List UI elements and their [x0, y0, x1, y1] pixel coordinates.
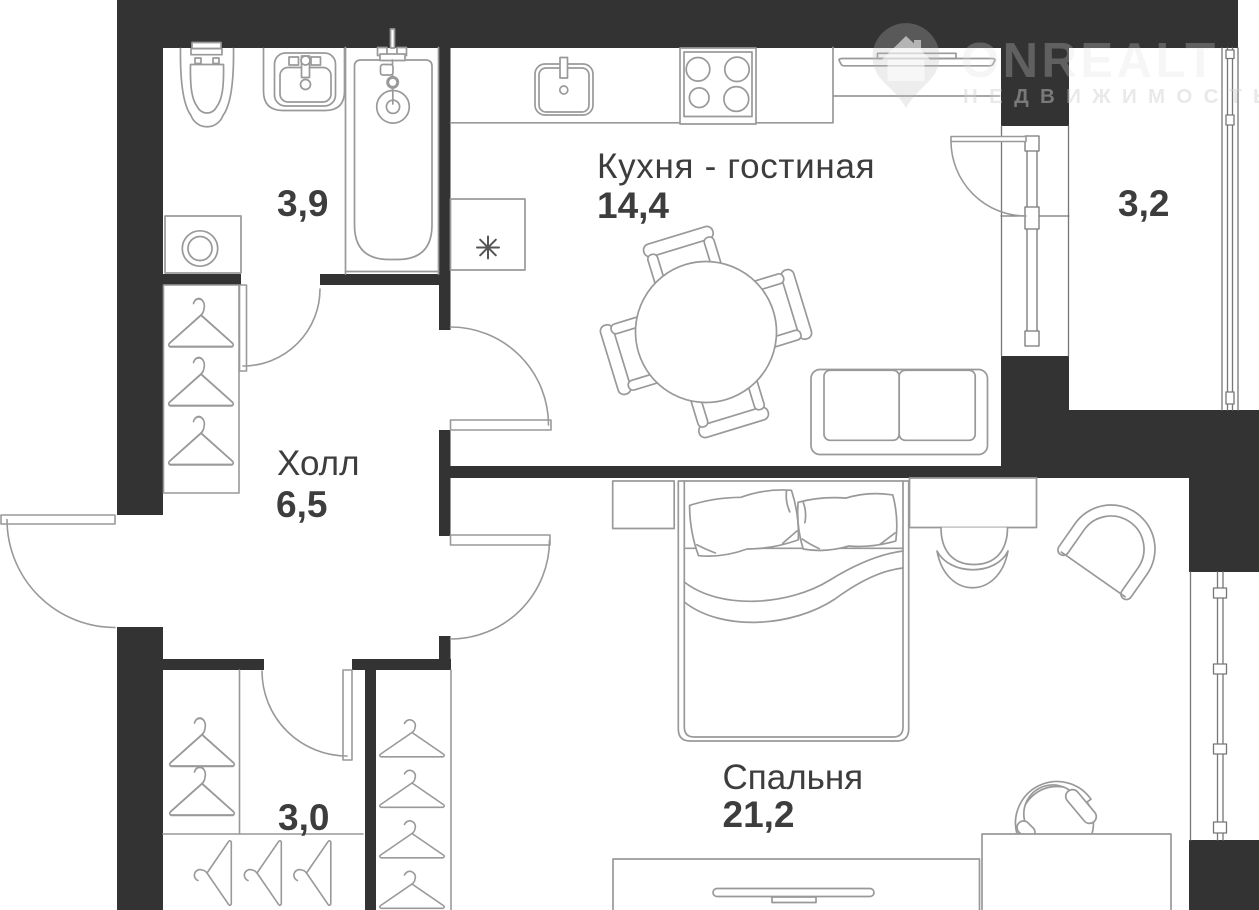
- svg-text:3,2: 3,2: [1118, 183, 1169, 224]
- svg-text:3,9: 3,9: [277, 183, 328, 224]
- svg-text:Спальня: Спальня: [723, 758, 864, 797]
- svg-text:6,5: 6,5: [276, 484, 327, 525]
- svg-text:14,4: 14,4: [597, 185, 669, 226]
- svg-text:ONREALT: ONREALT: [961, 34, 1219, 88]
- svg-text:3,0: 3,0: [278, 797, 329, 838]
- svg-text:21,2: 21,2: [723, 794, 795, 835]
- svg-text:НЕДВИЖИМОСТЬ: НЕДВИЖИМОСТЬ: [963, 85, 1259, 108]
- svg-text:Холл: Холл: [277, 444, 360, 483]
- svg-text:Кухня - гостиная: Кухня - гостиная: [597, 147, 875, 186]
